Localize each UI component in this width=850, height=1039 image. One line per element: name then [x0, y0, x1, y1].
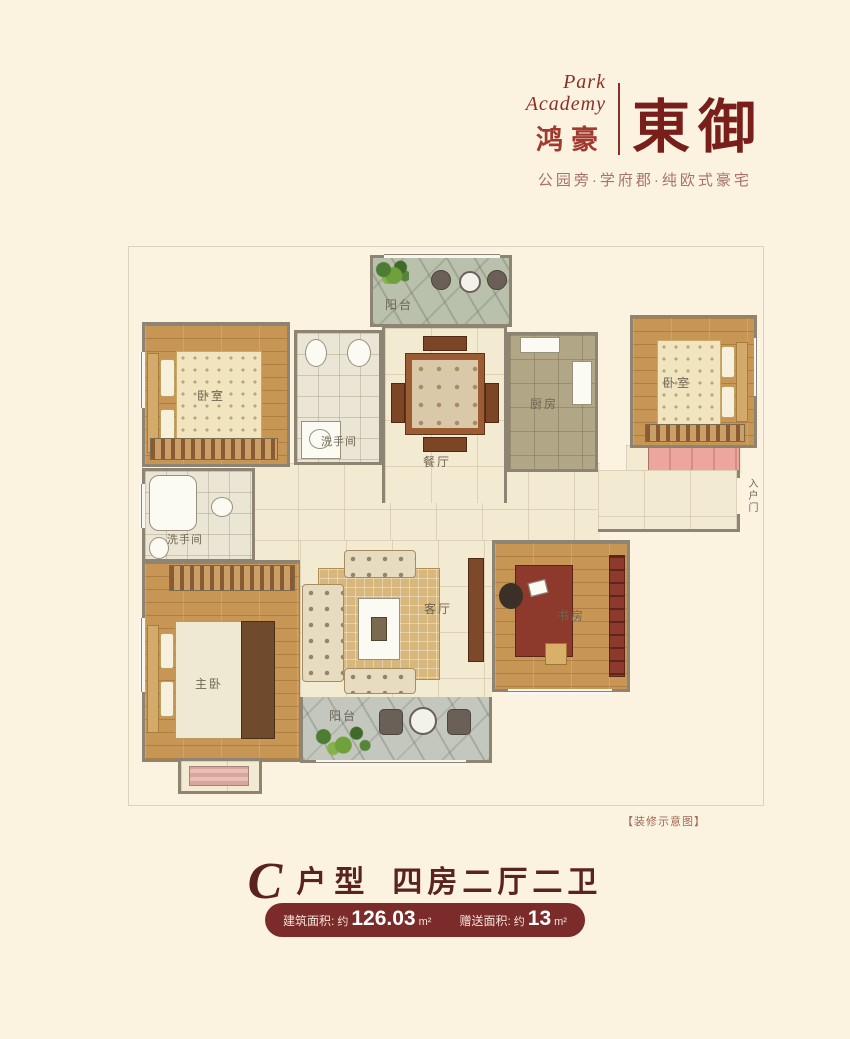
gift-area-label: 赠送面积:: [459, 912, 510, 929]
bed-headboard: [736, 342, 748, 422]
wardrobe: [169, 565, 295, 591]
brand-english-line2: Academy: [526, 94, 606, 116]
entry-door: [737, 478, 743, 514]
window: [139, 618, 145, 692]
building-area: 建筑面积: 约 126.03 m²: [283, 907, 431, 931]
room-kitchen: 厨房: [507, 332, 598, 472]
dining-chair: [423, 336, 467, 351]
bathtub: [149, 475, 197, 531]
brand-logo: Park Academy 鸿豪 東御 公园旁·学府郡·纯欧式豪宅: [526, 72, 764, 190]
dining-chair: [391, 383, 405, 423]
room-bathroom-left: 洗手间: [142, 468, 255, 562]
sink: [347, 339, 371, 367]
outdoor-table: [459, 271, 481, 293]
outdoor-table: [409, 707, 437, 735]
area-badge: 建筑面积: 约 126.03 m² 赠送面积: 约 13 m²: [265, 903, 585, 937]
outdoor-chair: [379, 709, 403, 735]
toilet: [149, 537, 169, 559]
unit-letter: C: [248, 853, 283, 910]
room-bathroom-top: 洗手间: [294, 330, 382, 465]
unit-word: 户型: [296, 866, 372, 899]
room-label-bedroom-top-left: 卧室: [197, 387, 225, 404]
dining-table: [405, 353, 485, 435]
sink: [211, 497, 233, 517]
brand-chinese: 鸿豪: [526, 118, 606, 157]
plant: [307, 723, 373, 757]
entry-foyer: [598, 470, 740, 532]
gift-area-number: 13: [528, 907, 551, 931]
sofa: [344, 550, 416, 578]
window: [316, 760, 466, 766]
toilet: [305, 339, 327, 367]
tv-cabinet: [468, 558, 484, 662]
gift-area-unit: m²: [554, 916, 567, 928]
pillow: [160, 633, 174, 669]
room-label-bedroom-top-right: 卧室: [663, 374, 691, 391]
room-label-dining: 餐厅: [423, 453, 451, 470]
outdoor-chair: [487, 270, 507, 290]
project-tagline: 公园旁·学府郡·纯欧式豪宅: [526, 169, 764, 190]
desk-chair: [499, 583, 523, 609]
room-living: 客厅: [300, 540, 492, 700]
bed-blanket: [241, 621, 275, 739]
wardrobe: [150, 438, 278, 460]
room-master-bedroom: 主卧: [142, 560, 302, 762]
window: [384, 252, 500, 258]
coffee-table: [358, 598, 400, 660]
master-bay-window: [178, 758, 262, 794]
logo-divider: [618, 83, 620, 155]
door-mat: [189, 766, 249, 786]
room-label-balcony-bottom: 阳台: [329, 707, 357, 724]
room-label-master-bedroom: 主卧: [195, 675, 223, 692]
dining-table-cloth: [412, 360, 478, 428]
room-label-balcony-top: 阳台: [385, 296, 413, 313]
building-area-prefix: 约: [337, 913, 348, 929]
unit-layout: 四房二厅二卫: [392, 866, 602, 899]
stove: [572, 361, 592, 405]
pillow: [160, 359, 175, 397]
stool: [545, 643, 567, 665]
building-area-number: 126.03: [351, 907, 415, 931]
room-bedroom-top-right: 卧室: [630, 315, 757, 448]
project-name: 東御: [632, 99, 764, 157]
room-balcony-bottom: 阳台: [300, 697, 492, 763]
room-label-kitchen: 厨房: [530, 395, 558, 412]
outdoor-chair: [447, 709, 471, 735]
logo-left-column: Park Academy 鸿豪: [526, 72, 618, 157]
building-area-unit: m²: [419, 916, 432, 928]
gift-area-prefix: 约: [514, 913, 525, 929]
entry-door-label: 入户门: [744, 478, 759, 514]
pillow: [721, 346, 735, 378]
hallway-floor-patch: [252, 540, 302, 562]
outdoor-chair: [431, 270, 451, 290]
shoe-cabinet: [648, 447, 740, 471]
plan-disclaimer: 【装修示意图】: [622, 813, 706, 829]
dining-chair: [423, 437, 467, 452]
room-study: 书房: [492, 540, 630, 692]
room-dining: 餐厅: [382, 325, 507, 503]
logo-lockup: Park Academy 鸿豪 東御: [526, 72, 764, 157]
wardrobe: [645, 424, 745, 442]
plant: [375, 260, 409, 284]
room-label-living: 客厅: [424, 600, 452, 617]
sofa: [344, 668, 416, 694]
room-label-bathroom-left: 洗手间: [167, 531, 203, 547]
window: [139, 484, 145, 528]
building-area-label: 建筑面积:: [283, 912, 334, 929]
gift-area: 赠送面积: 约 13 m²: [459, 907, 567, 931]
bed-headboard: [147, 625, 159, 733]
dining-chair: [485, 383, 499, 423]
pillow: [721, 386, 735, 418]
room-label-bathroom-top: 洗手间: [321, 433, 357, 449]
room-balcony-top: 阳台: [370, 255, 512, 327]
sofa: [302, 584, 344, 682]
bookshelf: [609, 555, 625, 677]
coffee-table-decor: [371, 617, 387, 641]
window: [508, 689, 612, 695]
room-label-study: 书房: [557, 607, 585, 624]
window: [754, 338, 760, 396]
window: [139, 352, 145, 408]
kitchen-sink: [520, 337, 560, 353]
pillow: [160, 681, 174, 717]
brand-english-line1: Park: [526, 72, 606, 94]
